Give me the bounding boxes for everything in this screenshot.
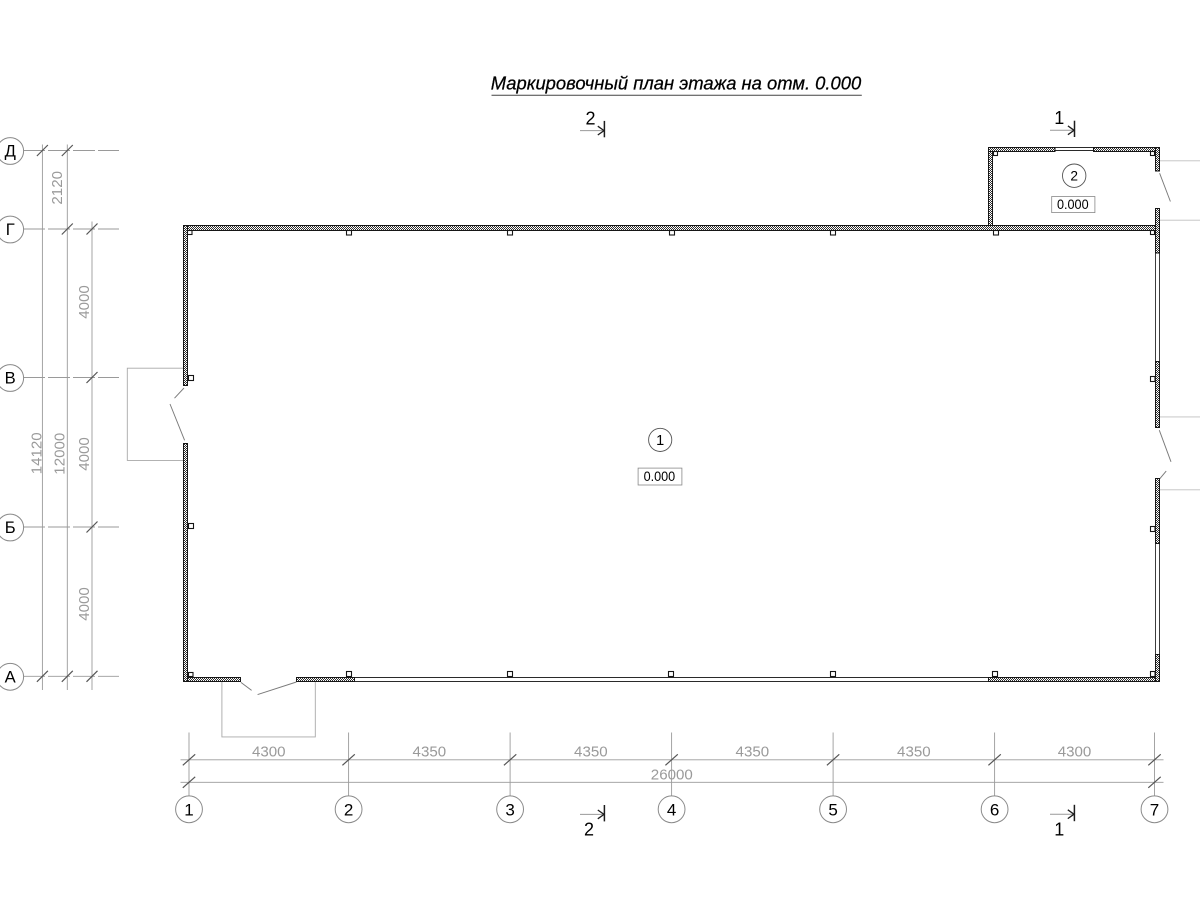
svg-text:4350: 4350	[897, 744, 931, 761]
svg-text:4300: 4300	[1058, 744, 1092, 761]
svg-text:1: 1	[1054, 819, 1064, 839]
svg-text:1: 1	[184, 800, 193, 819]
svg-text:Д: Д	[5, 142, 16, 161]
svg-text:Г: Г	[6, 220, 15, 239]
svg-text:2: 2	[584, 820, 594, 840]
svg-text:3: 3	[505, 800, 514, 819]
svg-text:26000: 26000	[651, 767, 693, 784]
svg-text:2: 2	[585, 109, 595, 129]
svg-text:Маркировочный план этажа на от: Маркировочный план этажа на отм. 0.000	[491, 72, 862, 93]
svg-text:Б: Б	[5, 518, 16, 537]
svg-text:1: 1	[1054, 108, 1064, 128]
svg-text:4000: 4000	[76, 437, 93, 471]
svg-text:0.000: 0.000	[644, 469, 676, 484]
svg-text:2: 2	[1070, 168, 1078, 183]
svg-text:2120: 2120	[49, 171, 66, 205]
svg-text:7: 7	[1150, 800, 1159, 819]
svg-text:1: 1	[656, 433, 664, 449]
svg-text:4350: 4350	[413, 744, 447, 761]
svg-text:4350: 4350	[574, 744, 608, 761]
svg-text:6: 6	[990, 800, 999, 819]
svg-text:4000: 4000	[76, 285, 93, 319]
svg-text:В: В	[5, 369, 16, 388]
svg-text:4000: 4000	[76, 587, 93, 621]
svg-text:14120: 14120	[28, 432, 45, 474]
svg-text:4: 4	[667, 800, 676, 819]
svg-text:4350: 4350	[736, 744, 770, 761]
svg-text:4300: 4300	[252, 744, 286, 761]
svg-text:12000: 12000	[52, 433, 69, 475]
svg-text:0.000: 0.000	[1057, 197, 1089, 212]
svg-text:А: А	[5, 668, 17, 687]
svg-text:5: 5	[828, 800, 837, 819]
svg-text:2: 2	[344, 800, 353, 819]
